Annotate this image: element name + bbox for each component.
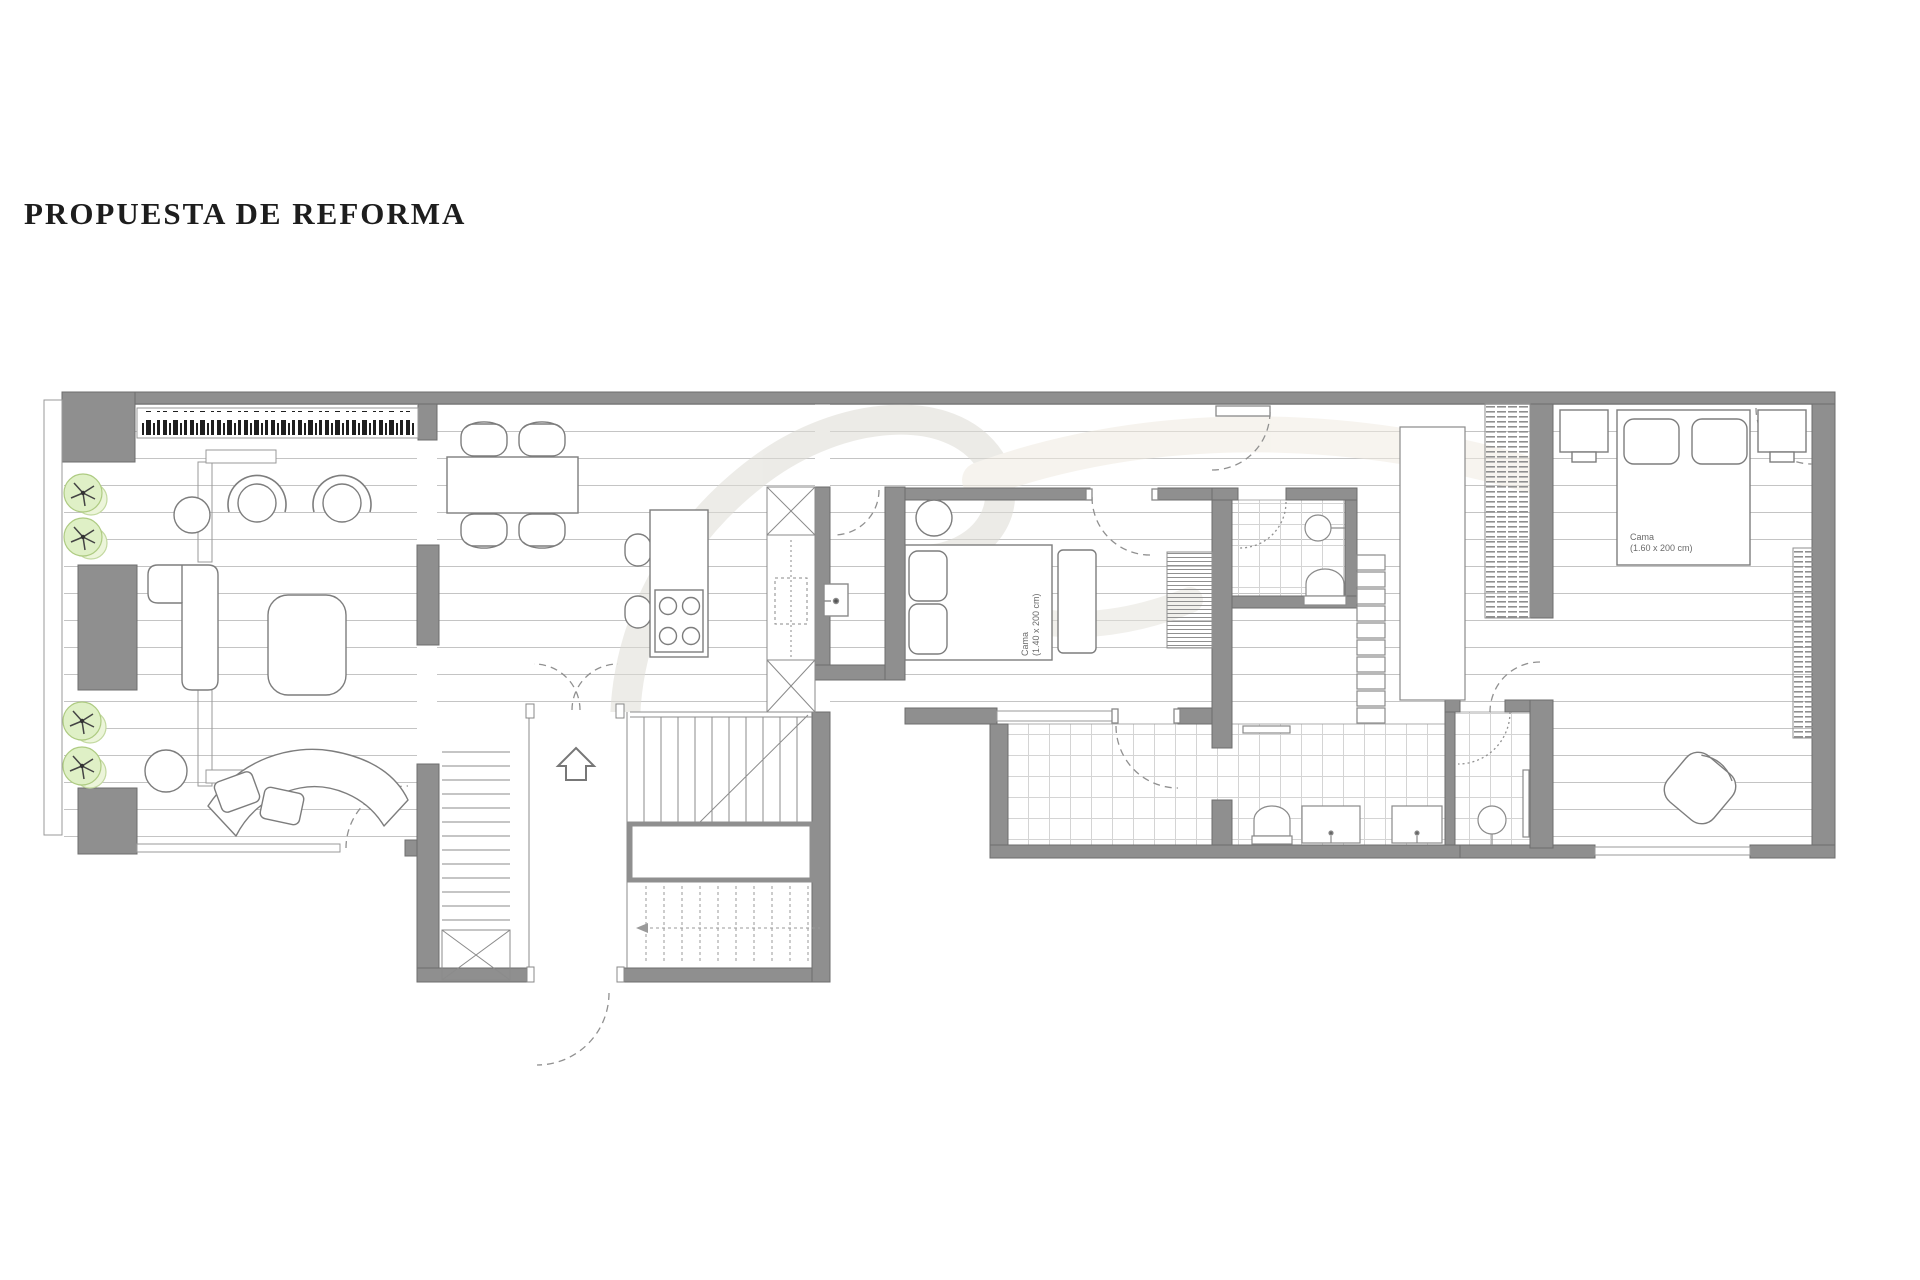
radiator-dressing	[1485, 404, 1530, 618]
bed1-label-line2: (1.40 x 200 cm)	[1031, 593, 1041, 656]
bedroom1-door-jamb-left	[1086, 489, 1092, 500]
entry-jamb-right	[616, 704, 624, 718]
wall-pier-bottom-left	[78, 788, 137, 854]
wall-bath1-right	[1345, 500, 1357, 608]
four-burner-cooktop-icon	[655, 590, 703, 652]
front-door-jamb-right	[617, 967, 624, 982]
wing-door-jamb-right	[1174, 709, 1180, 723]
nightstand-left	[1560, 410, 1608, 452]
bath2-towel-rail	[1243, 726, 1290, 733]
wall-bedroom1-bottom-b	[1178, 708, 1212, 724]
dining-chair	[461, 422, 507, 456]
wing-door-jamb-left	[1112, 709, 1118, 723]
wall-bedroom1-top-a	[905, 488, 1090, 500]
bedroom1-pillow	[909, 551, 947, 601]
dressing-wardrobe	[1400, 427, 1465, 700]
wall-bedroom1-bottom-a	[905, 708, 997, 724]
tall-cabinet-column	[767, 487, 815, 712]
bed2-label-line2: (1.60 x 200 cm)	[1630, 543, 1693, 553]
coffee-table	[145, 750, 187, 792]
wall-pier-mid-left	[78, 565, 137, 690]
wall-stair-left	[417, 764, 439, 982]
wall-bottom-right-b	[1750, 845, 1835, 858]
corridor-door-leaf	[1216, 406, 1270, 416]
wall-kitchen-stub	[815, 487, 830, 677]
floor-plan-page: PROPUESTA DE REFORMA	[0, 0, 1920, 1280]
closet-rails-bedroom1	[1167, 552, 1212, 648]
dining-chair	[461, 514, 507, 548]
wall-top	[62, 392, 1835, 404]
entry-jamb-left	[526, 704, 534, 718]
front-door-jamb-left	[527, 967, 534, 982]
bedroom1-door-jamb-right	[1152, 489, 1158, 500]
wall-bottom-left-jamb	[405, 840, 417, 856]
window-bottom-left	[137, 844, 340, 852]
bath1-toilet	[1304, 569, 1346, 605]
bar-stool	[625, 534, 651, 566]
wall-bottom-right-a	[1460, 845, 1595, 858]
bar-stool	[625, 596, 651, 628]
nightstand-left-drawer	[1572, 452, 1596, 462]
nightstand-right	[1758, 410, 1806, 452]
floor-plan-drawing: Cama (1.40 x 200 cm)	[0, 0, 1920, 1280]
wall-bath1-top-a	[1212, 488, 1238, 500]
ottoman	[268, 595, 346, 695]
dining-chair	[519, 422, 565, 456]
shower-window	[1523, 770, 1529, 837]
wall-master-left-bottom	[1530, 700, 1553, 848]
wall-bath1-top-b	[1286, 488, 1357, 500]
dining-chair	[519, 514, 565, 548]
radiator-top-keys	[140, 411, 415, 435]
bedroom1-round-table	[916, 500, 952, 536]
wall-wing-bottom	[990, 845, 1460, 858]
door-leaf-upper	[206, 450, 276, 463]
wall-shower-top-a	[1445, 700, 1460, 712]
wall-bedroom1-left	[885, 487, 905, 680]
wall-shower-left	[1445, 712, 1455, 845]
wall-pier-top-left	[62, 392, 135, 462]
wall-closet-block-a	[1212, 488, 1232, 748]
window-master	[1595, 847, 1750, 855]
bedroom1-pillow	[909, 604, 947, 654]
bed2-label-line1: Cama	[1630, 532, 1654, 542]
master-pillow-left	[1624, 419, 1679, 464]
wall-niche-stub	[418, 404, 437, 440]
wall-closet-block-b	[1212, 800, 1232, 845]
wall-shower-top-b	[1505, 700, 1530, 712]
wall-bedroom1-top-b	[1158, 488, 1212, 500]
master-pillow-right	[1692, 419, 1747, 464]
front-door-swing	[537, 993, 609, 1065]
stair-landing	[630, 824, 812, 880]
hall-washbasin	[824, 584, 848, 616]
bed1-label-line1: Cama	[1020, 632, 1030, 656]
wall-master-left-top	[1530, 404, 1553, 618]
shower-drain-icon	[1478, 806, 1506, 834]
balcony-rail	[44, 400, 62, 835]
wall-stair-right	[812, 712, 830, 982]
wall-living-stub	[417, 545, 439, 645]
nightstand-right-drawer	[1770, 452, 1794, 462]
bath2-toilet	[1252, 806, 1292, 844]
radiator-master	[1793, 548, 1815, 738]
wall-stair-bottom-b	[618, 968, 830, 982]
wall-wing-left	[990, 724, 1008, 858]
side-table	[174, 497, 210, 533]
bath1-sink	[1305, 515, 1331, 541]
dining-table	[447, 457, 578, 513]
bedroom1-bench	[1058, 550, 1096, 653]
